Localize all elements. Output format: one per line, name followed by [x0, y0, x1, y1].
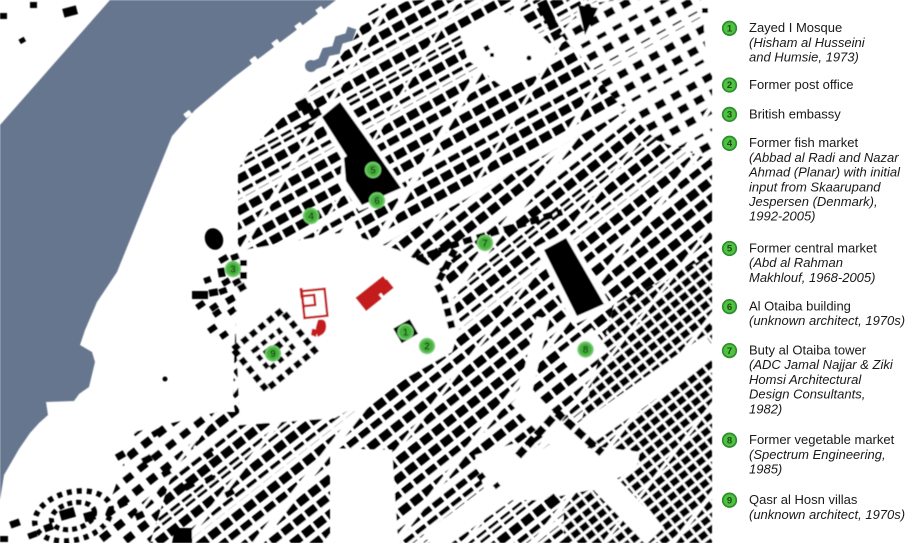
svg-text:4: 4 [727, 139, 733, 150]
svg-text:3: 3 [230, 264, 236, 275]
svg-text:4: 4 [308, 211, 314, 222]
svg-text:Jespersen (Denmark),: Jespersen (Denmark), [748, 194, 878, 209]
svg-text:5: 5 [727, 244, 733, 255]
svg-text:(unknown architect, 1970s): (unknown architect, 1970s) [749, 313, 905, 328]
svg-text:1992-2005): 1992-2005) [749, 209, 816, 224]
svg-text:1982): 1982) [749, 401, 782, 416]
svg-text:Qasr al Hosn villas: Qasr al Hosn villas [749, 492, 858, 507]
svg-text:(ADC Jamal Najjar & Ziki: (ADC Jamal Najjar & Ziki [749, 357, 894, 372]
svg-text:9: 9 [270, 349, 276, 360]
svg-text:Al Otaiba building: Al Otaiba building [749, 299, 851, 314]
svg-text:Makhlouf, 1968-2005): Makhlouf, 1968-2005) [749, 270, 875, 285]
svg-text:7: 7 [482, 238, 488, 249]
svg-text:(unknown architect, 1970s): (unknown architect, 1970s) [749, 507, 905, 522]
svg-text:5: 5 [370, 165, 376, 176]
svg-text:Buty al Otaiba tower: Buty al Otaiba tower [749, 343, 867, 358]
svg-text:6: 6 [727, 302, 732, 313]
svg-text:2: 2 [424, 341, 430, 352]
svg-text:input from Skaarupand: input from Skaarupand [749, 179, 881, 194]
svg-text:7: 7 [727, 346, 732, 357]
svg-text:6: 6 [374, 196, 380, 207]
svg-text:(Abbad al Radi and Nazar: (Abbad al Radi and Nazar [749, 150, 899, 165]
svg-text:1: 1 [403, 327, 409, 338]
svg-text:Former vegetable market: Former vegetable market [749, 432, 895, 447]
svg-text:8: 8 [727, 435, 732, 446]
svg-text:Former fish market: Former fish market [749, 135, 858, 150]
svg-text:9: 9 [727, 495, 732, 506]
svg-text:(Spectrum Engineering,: (Spectrum Engineering, [749, 447, 886, 462]
svg-text:8: 8 [583, 345, 589, 356]
svg-text:Zayed I Mosque: Zayed I Mosque [749, 20, 842, 35]
svg-text:British embassy: British embassy [749, 106, 841, 121]
svg-text:1985): 1985) [749, 462, 782, 477]
svg-text:3: 3 [727, 110, 732, 121]
svg-text:Former post office: Former post office [749, 77, 854, 92]
svg-text:2: 2 [727, 80, 732, 91]
svg-text:Homsi Architectural: Homsi Architectural [749, 372, 862, 387]
svg-text:Design Consultants,: Design Consultants, [749, 387, 865, 402]
svg-text:(Abd al Rahman: (Abd al Rahman [749, 255, 843, 270]
svg-text:Former central market: Former central market [749, 240, 877, 255]
svg-text:(Hisham al Husseini: (Hisham al Husseini [749, 35, 866, 50]
svg-text:1: 1 [727, 24, 733, 35]
svg-text:Ahmad (Planar) with initial: Ahmad (Planar) with initial [748, 165, 901, 180]
svg-text:and Humsie, 1973): and Humsie, 1973) [749, 50, 859, 65]
